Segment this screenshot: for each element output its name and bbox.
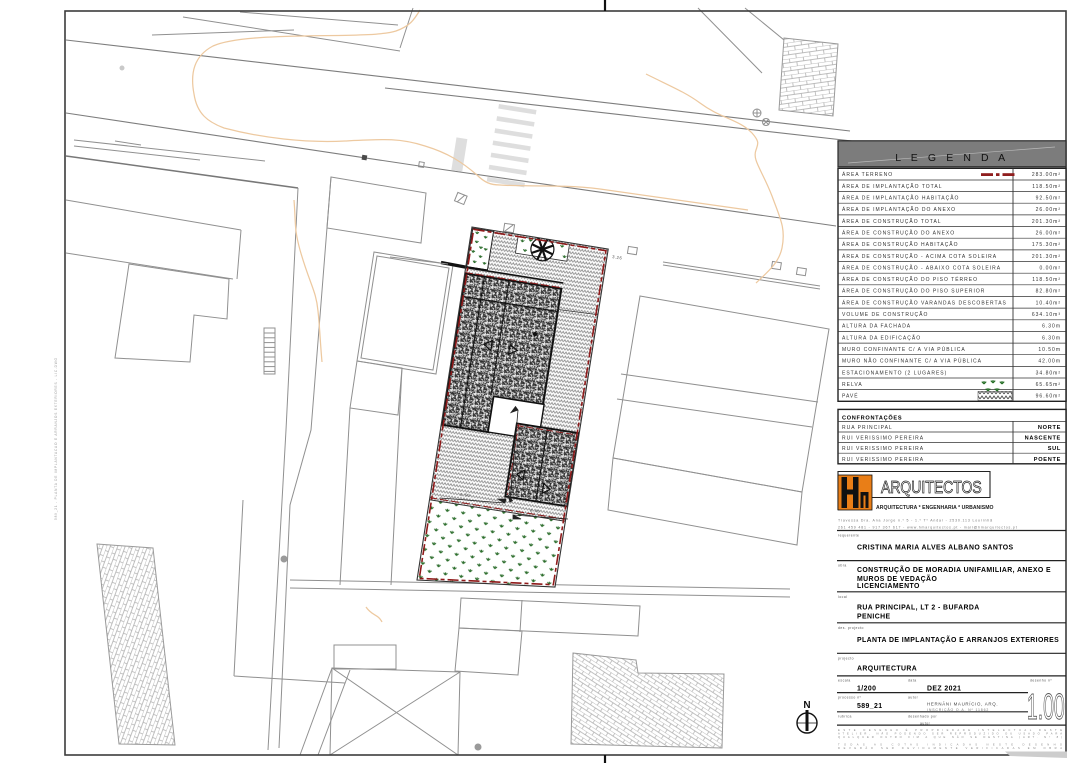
svg-text:ÁREA DE CONSTRUÇÃO DO ANEXO: ÁREA DE CONSTRUÇÃO DO ANEXO xyxy=(842,230,955,237)
svg-text:118.50m²: 118.50m² xyxy=(1032,277,1061,283)
svg-text:requerente: requerente xyxy=(838,534,859,538)
svg-text:6.30m: 6.30m xyxy=(1042,335,1061,341)
svg-text:NORTE: NORTE xyxy=(1038,425,1061,431)
svg-text:ARQUITECTURA: ARQUITECTURA xyxy=(857,666,917,673)
svg-text:261 459 481 - 917 367 617 - ww: 261 459 481 - 917 367 617 - www.hmarquit… xyxy=(838,526,1018,530)
svg-text:10.40m²: 10.40m² xyxy=(1036,300,1061,306)
svg-text:CONFRONTAÇÕES: CONFRONTAÇÕES xyxy=(842,414,902,421)
svg-text:92.50m²: 92.50m² xyxy=(1036,196,1061,202)
svg-text:34.80m²: 34.80m² xyxy=(1036,370,1061,376)
svg-text:RELVA: RELVA xyxy=(842,382,863,388)
svg-text:65.65m²: 65.65m² xyxy=(1036,382,1061,388)
svg-text:8.40: 8.40 xyxy=(530,508,541,514)
svg-text:ÁREA DE IMPLANTAÇÃO HABITAÇÃO: ÁREA DE IMPLANTAÇÃO HABITAÇÃO xyxy=(842,195,959,202)
svg-text:1/200: 1/200 xyxy=(857,686,876,693)
svg-text:CONSTRUÇÃO DE MORADIA UNIFAMIL: CONSTRUÇÃO DE MORADIA UNIFAMILIAR, ANEXO… xyxy=(857,565,1051,574)
svg-text:RUA PRINCIPAL: RUA PRINCIPAL xyxy=(842,425,893,431)
svg-text:SUL: SUL xyxy=(1048,446,1061,452)
svg-text:589_21: 589_21 xyxy=(857,703,883,710)
svg-text:6.30m: 6.30m xyxy=(1042,324,1061,330)
svg-text:RUA PRINCIPAL, LT 2 - BUFARDA: RUA PRINCIPAL, LT 2 - BUFARDA xyxy=(857,605,980,612)
svg-text:N: N xyxy=(803,700,810,711)
svg-text:HERNÂNI MAURÍCIO, ARQ.: HERNÂNI MAURÍCIO, ARQ. xyxy=(927,702,998,707)
svg-text:MURO CONFINANTE C/ A VIA PÚBLI: MURO CONFINANTE C/ A VIA PÚBLICA xyxy=(842,346,966,353)
svg-text:PAVÉ: PAVÉ xyxy=(842,393,859,400)
svg-text:42.00m: 42.00m xyxy=(1038,359,1061,365)
svg-text:desenho nº: desenho nº xyxy=(1030,679,1052,683)
svg-text:ÁREA DE CONSTRUÇÃO DO PISO TÉR: ÁREA DE CONSTRUÇÃO DO PISO TÉRREO xyxy=(842,276,978,283)
svg-text:ARQUITECTURA * ENGENHARIA * UR: ARQUITECTURA * ENGENHARIA * URBANISMO xyxy=(876,505,994,511)
svg-text:MURO NÃO CONFINANTE C/ A VIA P: MURO NÃO CONFINANTE C/ A VIA PÚBLICA xyxy=(842,358,982,365)
svg-text:processo nº: processo nº xyxy=(838,695,862,699)
svg-text:DEZ 2021: DEZ 2021 xyxy=(927,686,961,693)
svg-text:201.30m²: 201.30m² xyxy=(1032,219,1061,225)
svg-text:RUI VERISSIMO PEREIRA: RUI VERISSIMO PEREIRA xyxy=(842,446,924,452)
svg-text:26.00m²: 26.00m² xyxy=(1036,207,1061,213)
svg-text:10.50m: 10.50m xyxy=(1038,347,1061,353)
svg-text:0.00m²: 0.00m² xyxy=(1039,265,1061,271)
svg-text:PLANTA DE IMPLANTAÇÃO E ARRANJ: PLANTA DE IMPLANTAÇÃO E ARRANJOS EXTERIO… xyxy=(857,635,1059,644)
svg-text:ALTURA DA EDIFICAÇÃO: ALTURA DA EDIFICAÇÃO xyxy=(842,334,921,341)
svg-text:escala: escala xyxy=(838,679,851,683)
svg-text:desenhado por: desenhado por xyxy=(908,715,937,719)
svg-text:RUI VERISSIMO PEREIRA: RUI VERISSIMO PEREIRA xyxy=(842,457,924,463)
svg-text:ESTACIONAMENTO (2 LUGARES): ESTACIONAMENTO (2 LUGARES) xyxy=(842,370,947,376)
svg-text:RUI VERISSIMO PEREIRA: RUI VERISSIMO PEREIRA xyxy=(842,436,924,442)
svg-text:ÁREA DE CONSTRUÇÃO TOTAL: ÁREA DE CONSTRUÇÃO TOTAL xyxy=(842,218,942,225)
svg-text:PENICHE: PENICHE xyxy=(857,614,891,621)
svg-text:283.00m²: 283.00m² xyxy=(1032,172,1061,178)
svg-text:634.10m³: 634.10m³ xyxy=(1032,312,1061,318)
svg-text:POENTE: POENTE xyxy=(1034,457,1061,463)
svg-text:local: local xyxy=(838,595,847,599)
svg-text:obra: obra xyxy=(838,564,847,568)
svg-text:VOLUME DE CONSTRUÇÃO: VOLUME DE CONSTRUÇÃO xyxy=(842,311,928,318)
svg-text:ALTURA DA FACHADA: ALTURA DA FACHADA xyxy=(842,324,911,330)
svg-text:175.30m²: 175.30m² xyxy=(1032,242,1061,248)
svg-text:L E G E N D A: L E G E N D A xyxy=(895,152,1009,164)
svg-text:ÁREA DE IMPLANTAÇÃO TOTAL: ÁREA DE IMPLANTAÇÃO TOTAL xyxy=(842,183,942,190)
svg-text:26.00m²: 26.00m² xyxy=(1036,231,1061,237)
svg-text:ÁREA DE CONSTRUÇÃO DO PISO SUP: ÁREA DE CONSTRUÇÃO DO PISO SUPERIOR xyxy=(842,288,985,295)
svg-text:LICENCIAMENTO: LICENCIAMENTO xyxy=(857,583,920,590)
svg-text:ARQUITECTOS: ARQUITECTOS xyxy=(881,479,982,498)
svg-text:ÁREA DE CONSTRUÇÃO VARANDAS DE: ÁREA DE CONSTRUÇÃO VARANDAS DESCOBERTAS xyxy=(842,299,1007,306)
svg-text:ÁREA DE CONSTRUÇÃO HABITAÇÃO: ÁREA DE CONSTRUÇÃO HABITAÇÃO xyxy=(842,241,959,248)
svg-text:ÁREA DE CONSTRUÇÃO - ACIMA COT: ÁREA DE CONSTRUÇÃO - ACIMA COTA SOLEIRA xyxy=(842,253,997,260)
svg-text:9.50: 9.50 xyxy=(460,492,471,498)
svg-text:118.50m²: 118.50m² xyxy=(1032,184,1061,190)
svg-text:NASCENTE: NASCENTE xyxy=(1025,436,1061,442)
svg-text:CRISTINA MARIA ALVES ALBANO SA: CRISTINA MARIA ALVES ALBANO SANTOS xyxy=(857,545,1014,552)
svg-text:Travessa Dra. Ana Jorge n.º 5: Travessa Dra. Ana Jorge n.º 5 - 1.º Tº A… xyxy=(838,519,993,523)
svg-text:rubrica: rubrica xyxy=(838,715,852,719)
svg-text:ÁREA TERRENO: ÁREA TERRENO xyxy=(842,171,893,178)
svg-text:201.30m²: 201.30m² xyxy=(1032,254,1061,260)
svg-text:ÁREA DE CONSTRUÇÃO - ABAIXO CO: ÁREA DE CONSTRUÇÃO - ABAIXO COTA SOLEIRA xyxy=(842,264,1001,271)
svg-text:ÁREA DE IMPLANTAÇÃO DO ANEXO: ÁREA DE IMPLANTAÇÃO DO ANEXO xyxy=(842,206,956,213)
svg-text:1.00: 1.00 xyxy=(1027,688,1065,728)
svg-text:96.60m²: 96.60m² xyxy=(1036,394,1061,400)
svg-text:des. projecto: des. projecto xyxy=(838,626,864,630)
svg-text:autor: autor xyxy=(908,695,919,699)
svg-text:projecto: projecto xyxy=(838,656,854,660)
svg-text:82.80m²: 82.80m² xyxy=(1036,289,1061,295)
svg-text:589_21 - PLANTA DE IMPLANTACAO: 589_21 - PLANTA DE IMPLANTACAO E ARRANJO… xyxy=(54,357,58,520)
svg-text:MUROS DE VEDAÇÃO: MUROS DE VEDAÇÃO xyxy=(857,574,937,583)
svg-text:data: data xyxy=(908,679,917,683)
